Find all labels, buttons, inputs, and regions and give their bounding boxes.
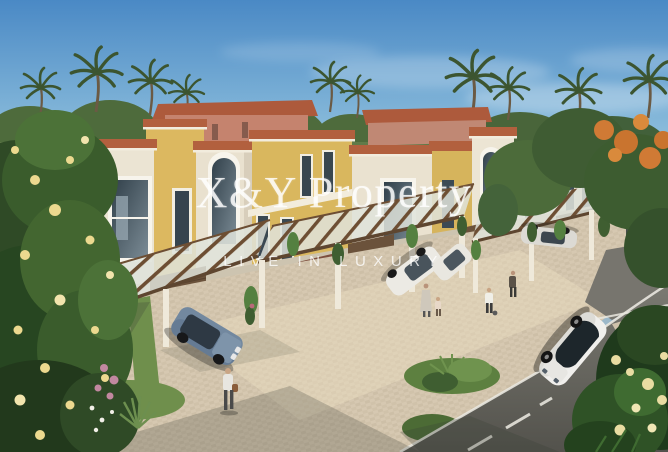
property-photo: X&Y Property LIVE IN LUXURY xyxy=(0,0,668,452)
rendered-scene xyxy=(0,0,668,452)
